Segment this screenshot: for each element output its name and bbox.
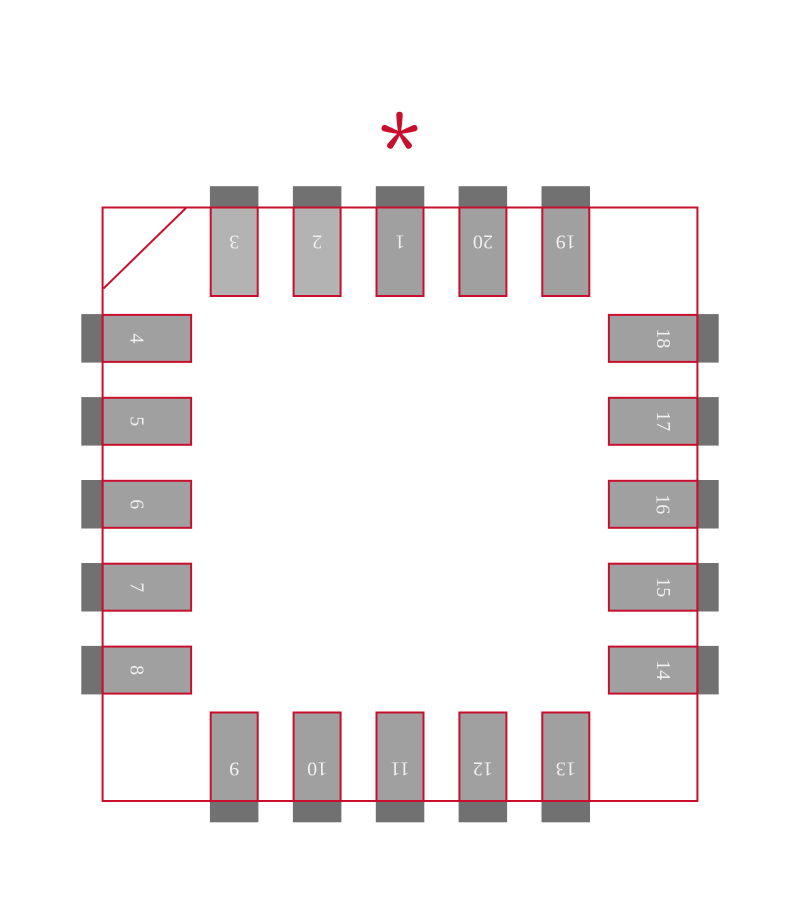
svg-text:17: 17 — [652, 411, 674, 431]
svg-text:9: 9 — [229, 757, 239, 779]
svg-text:8: 8 — [125, 665, 147, 675]
svg-text:11: 11 — [390, 757, 409, 779]
svg-text:1: 1 — [395, 230, 405, 252]
svg-text:19: 19 — [556, 230, 576, 252]
svg-text:15: 15 — [652, 577, 674, 597]
svg-text:6: 6 — [125, 499, 147, 509]
svg-text:18: 18 — [652, 328, 674, 348]
svg-text:2: 2 — [312, 230, 322, 252]
svg-text:12: 12 — [473, 757, 493, 779]
svg-text:7: 7 — [125, 582, 147, 592]
svg-text:10: 10 — [307, 757, 327, 779]
svg-text:5: 5 — [125, 416, 147, 426]
svg-text:4: 4 — [125, 333, 147, 343]
svg-text:20: 20 — [473, 230, 493, 252]
svg-text:3: 3 — [229, 230, 239, 252]
svg-text:13: 13 — [556, 757, 576, 779]
svg-text:14: 14 — [652, 660, 674, 680]
svg-text:16: 16 — [652, 494, 674, 514]
